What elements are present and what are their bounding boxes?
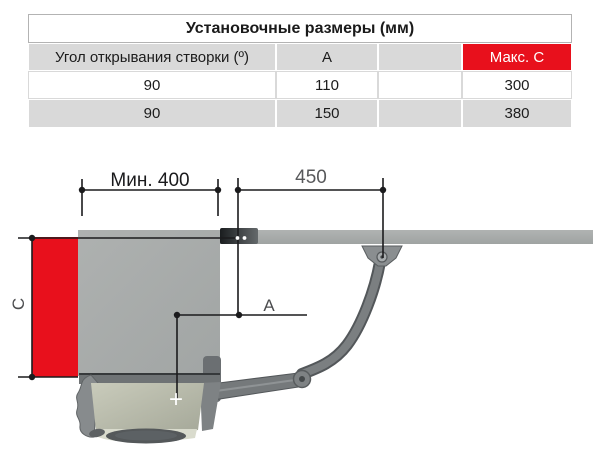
c-zone-highlight: [32, 237, 78, 377]
motor-body-panel: [91, 383, 204, 435]
label-min-400: Мин. 400: [110, 170, 189, 191]
arm-elbow-pin: [299, 376, 305, 382]
arm-lower-segment: [211, 373, 305, 400]
gate-hinge-block: [220, 228, 258, 244]
dim-dot: [29, 235, 35, 241]
dim-dot: [380, 187, 386, 193]
dim-dot: [215, 187, 221, 193]
dim-dot: [29, 374, 35, 380]
dim-dot: [236, 312, 242, 318]
label-c: C: [9, 298, 28, 310]
dim-dot: [235, 187, 241, 193]
label-a: A: [263, 296, 275, 315]
motor-top-band: [79, 375, 220, 384]
motor-base-cap-sheen: [115, 431, 177, 441]
dim-dot: [174, 312, 180, 318]
page: Установочные размеры (мм) Угол открывани…: [0, 0, 600, 470]
operator-motor: [77, 373, 221, 444]
dim-dot: [79, 187, 85, 193]
plus-marker-icon: +: [169, 386, 183, 413]
hinge-screw-dot: [243, 236, 247, 240]
pillar: [78, 230, 220, 376]
installation-drawing: Мин. 400 450 A C +: [0, 0, 600, 470]
label-450: 450: [295, 167, 327, 188]
articulated-arm: [203, 246, 402, 402]
hinge-screw-dot: [236, 236, 240, 240]
